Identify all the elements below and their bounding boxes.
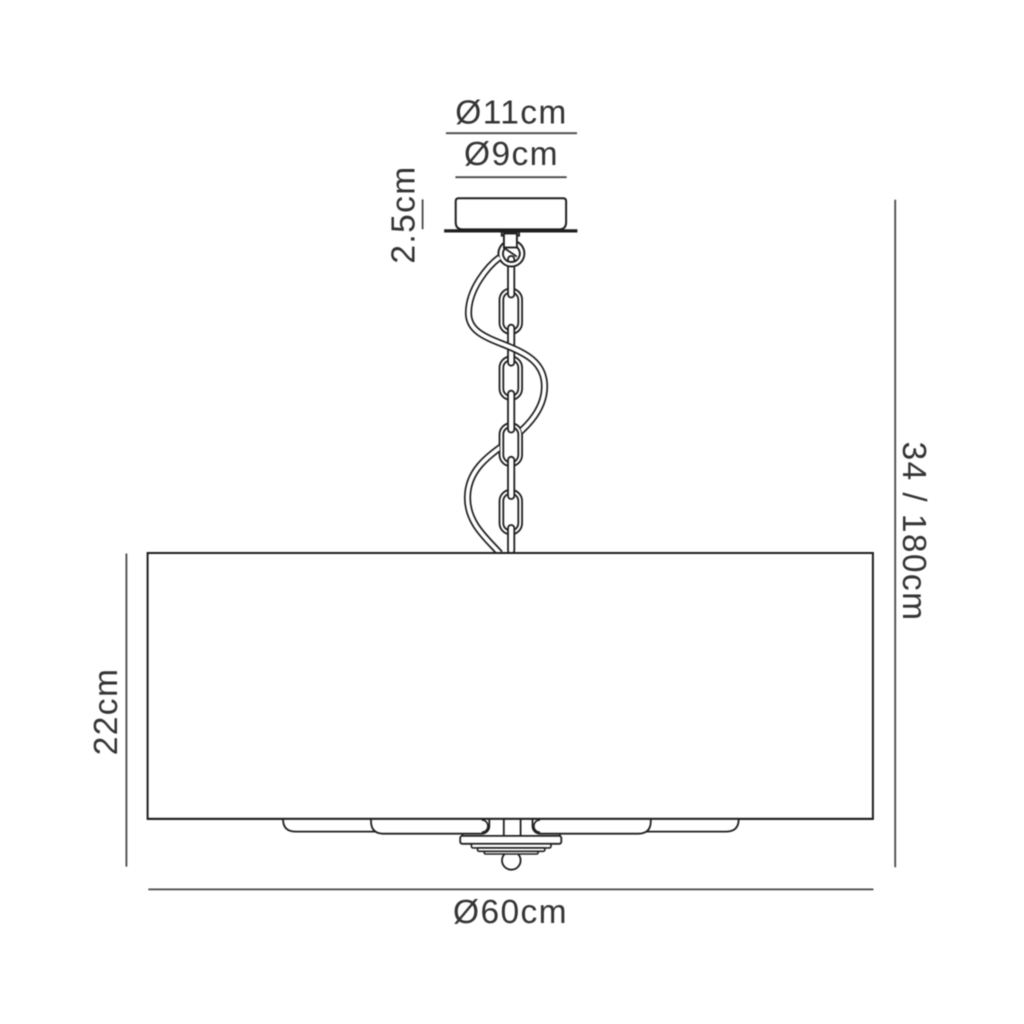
svg-text:34 / 180cm: 34 / 180cm <box>895 442 932 622</box>
svg-text:2.5cm: 2.5cm <box>386 165 423 263</box>
svg-text:22cm: 22cm <box>88 668 125 756</box>
svg-text:Ø60cm: Ø60cm <box>453 894 568 931</box>
svg-text:Ø9cm: Ø9cm <box>464 136 559 173</box>
svg-text:Ø11cm: Ø11cm <box>455 95 568 132</box>
